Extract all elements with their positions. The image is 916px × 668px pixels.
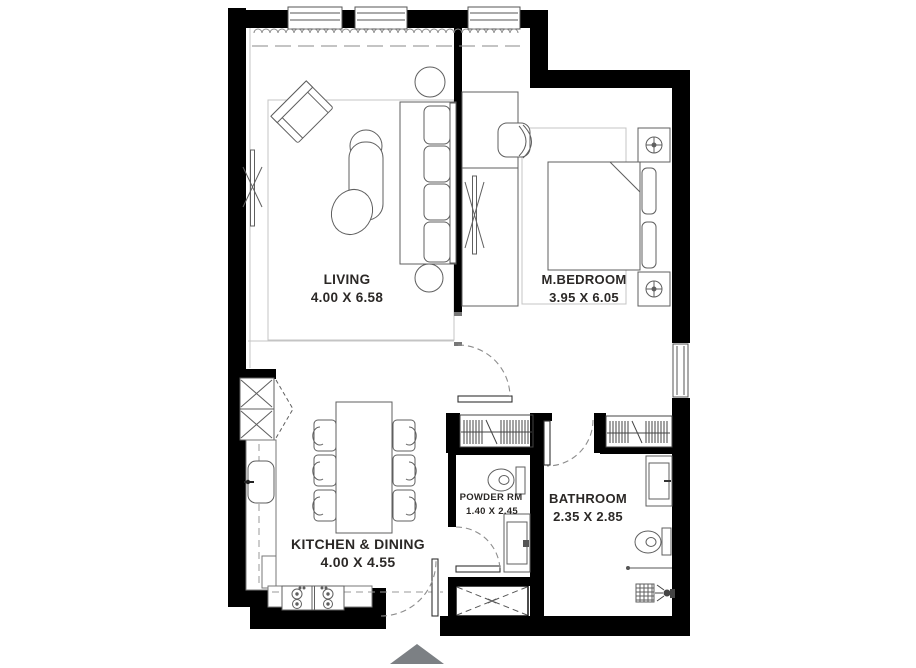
dining-chair [313,455,336,486]
wall-powder-south [448,577,530,586]
bedroom-door [454,312,512,402]
bathroom-fixtures [626,456,675,602]
bathroom-toilet [635,528,671,555]
wall-bottom-right [440,616,690,636]
dining-chair [313,490,336,521]
dining-chair [393,490,416,521]
window-right [671,343,691,398]
wall-storage-west [448,577,456,636]
powder-toilet [488,467,525,494]
closet-left [460,415,533,447]
stove [282,586,344,610]
floor-plan-canvas: LIVING 4.00 X 6.58 M.BEDROOM 3.95 X 6.05… [0,0,916,668]
side-table-top [415,67,445,97]
closet-right [606,416,672,447]
kitchen-furniture [240,378,443,610]
powder-room-fixtures [488,467,530,572]
kitchen-dims: 4.00 X 4.55 [321,554,396,570]
floor-plan-drawing: LIVING 4.00 X 6.58 M.BEDROOM 3.95 X 6.05… [0,0,916,668]
dining-chair [393,420,416,451]
armchair [271,81,333,143]
dining-chair [313,420,336,451]
curtain [252,29,520,46]
curtain-loops [254,29,518,33]
shower-area [626,566,675,602]
bedroom-armchair [498,123,532,158]
living-label: LIVING [324,272,371,287]
shower-drain [636,584,654,602]
living-furniture [243,67,456,292]
bathroom-vanity-sink [646,456,672,506]
powder-dims: 1.40 X 2.45 [466,506,518,517]
wall-bedroom-top [530,70,690,88]
window-top-1 [288,7,342,29]
bathroom-door [544,420,593,466]
side-table-bottom [415,264,443,292]
bed [548,162,656,270]
entry-storage-closet [456,586,528,616]
wall-powder-bath-divider [530,413,544,635]
bathroom-dims: 2.35 X 2.85 [553,509,623,524]
living-dims: 4.00 X 6.58 [311,290,384,305]
powder-vanity-sink [504,514,530,572]
kitchen-counter-left [244,440,276,590]
bedroom-dims: 3.95 X 6.05 [549,290,619,305]
kitchen-counter-bottom [268,586,443,610]
powder-room-door [456,527,500,572]
nightstand-top [638,128,670,162]
wall-left-closet-back [455,447,533,455]
entrance-arrow-icon [390,644,444,664]
wall-left [228,8,246,594]
bedroom-label: M.BEDROOM [541,272,626,287]
kitchen-label: KITCHEN & DINING [291,536,425,552]
refrigerator [240,378,293,440]
powder-label: POWDER RM [460,492,523,503]
nightstand-bottom [638,272,670,306]
wall-entry-jamb [372,588,386,629]
sofa [400,102,456,264]
dining-chair [393,455,416,486]
dining-table [336,402,392,533]
window-top-3 [468,7,520,29]
dining-set [313,402,416,533]
wall-right-closet-back [600,447,690,454]
chaise-lounge [324,130,383,241]
bathroom-label: BATHROOM [549,491,627,506]
wall-bath-north-stub [544,413,552,421]
window-top-2 [355,7,407,29]
wall-powder-west [448,453,456,527]
